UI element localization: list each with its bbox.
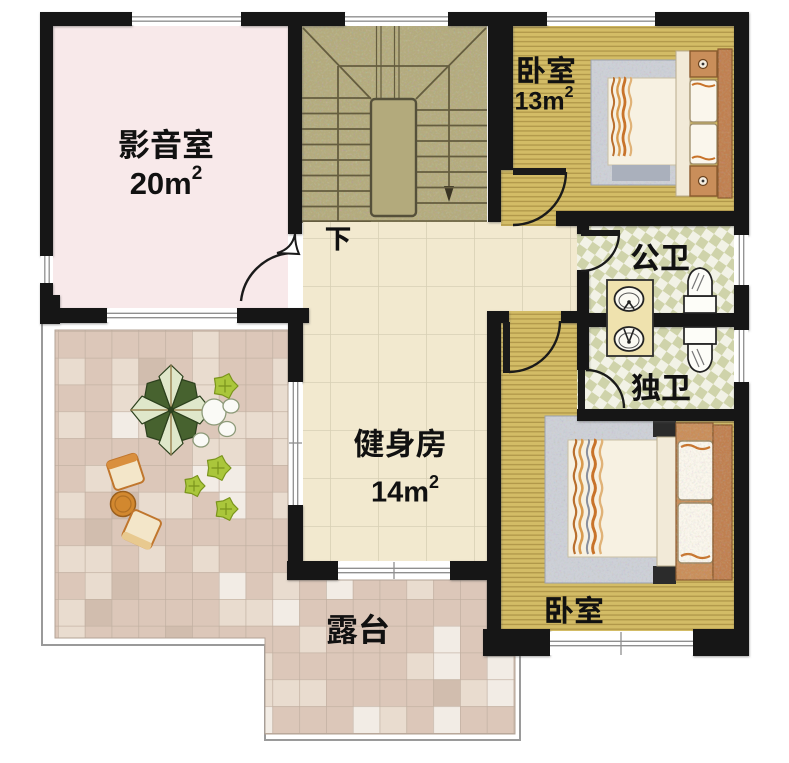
svg-text:20m2: 20m2 <box>130 163 203 201</box>
svg-text:14m2: 14m2 <box>371 472 439 509</box>
